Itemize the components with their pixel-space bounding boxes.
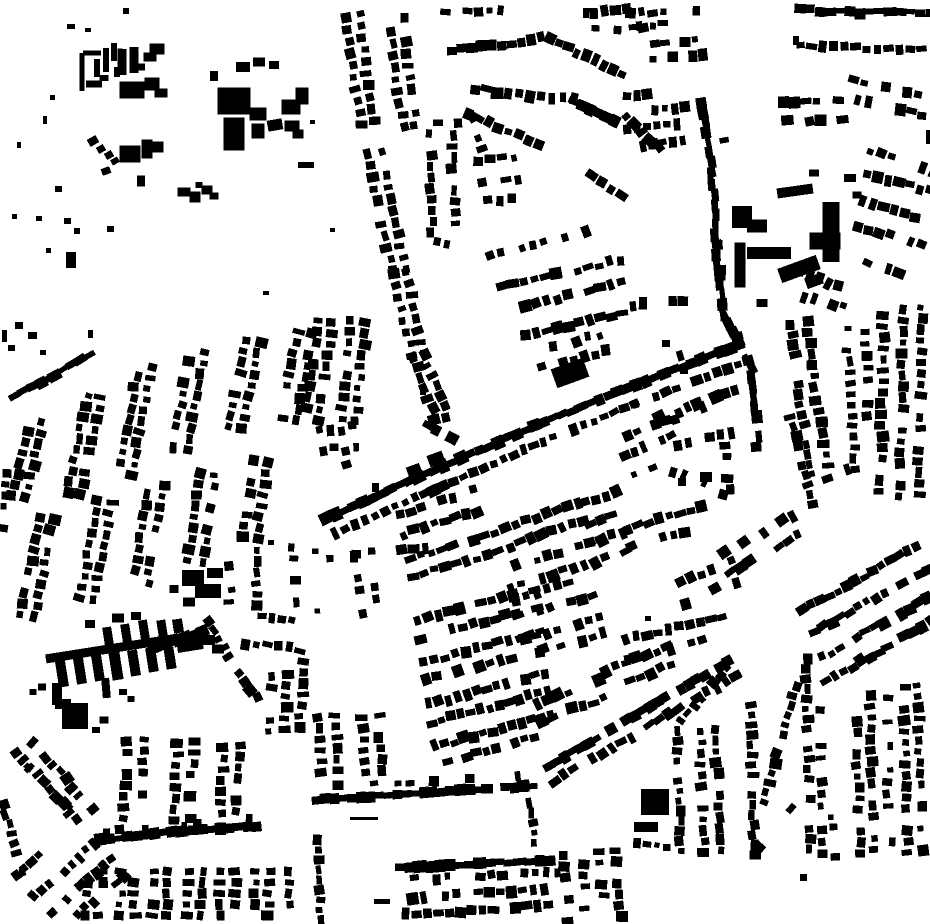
- figure-ground-map: [0, 0, 930, 924]
- building-footprints: [0, 3, 930, 924]
- building-footprints-canvas: [0, 0, 930, 924]
